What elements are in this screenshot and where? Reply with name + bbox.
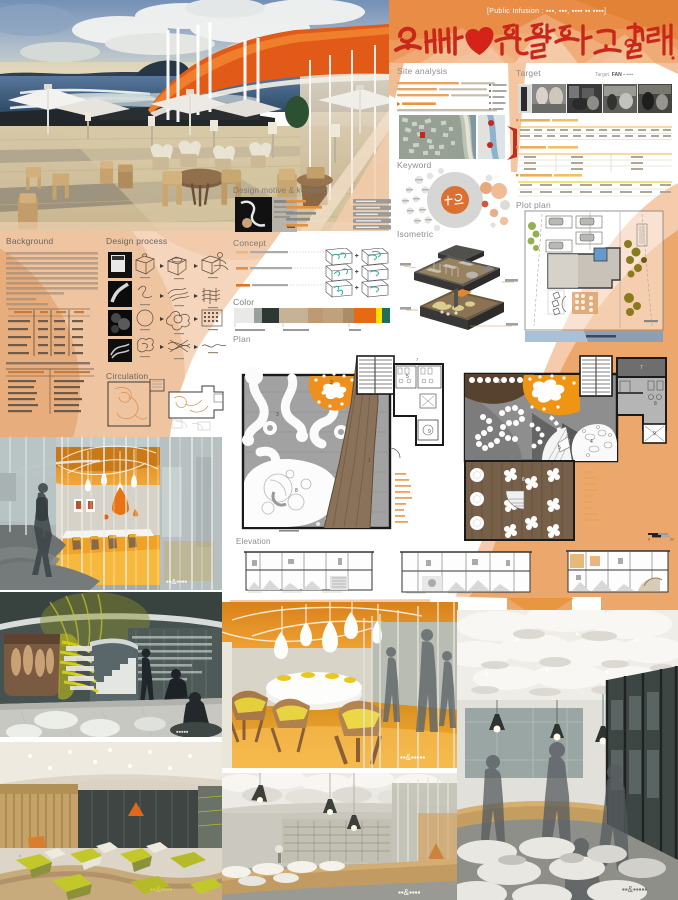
svg-text:2m: 2m [670,537,674,541]
svg-text:5: 5 [406,374,409,380]
svg-text:▪▪▪▪▪: ▪▪▪▪▪ [176,729,189,736]
svg-text:9: 9 [653,431,656,437]
svg-text:3: 3 [550,381,553,387]
svg-text:6: 6 [522,477,525,483]
svg-text:1: 1 [368,458,371,464]
svg-text:▪▪&▪▪▪▪▪: ▪▪&▪▪▪▪▪ [622,885,647,894]
svg-text:4: 4 [590,439,593,445]
svg-text:▪▪&▪▪▪▪▪: ▪▪&▪▪▪▪▪ [400,753,425,762]
svg-text:9: 9 [428,429,431,435]
svg-text:8: 8 [654,401,657,407]
svg-text:7: 7 [640,365,643,371]
svg-text:1: 1 [506,421,509,427]
svg-text:2: 2 [498,379,501,385]
svg-text:8: 8 [295,488,298,494]
svg-text:▪▪&▪▪▪▪: ▪▪&▪▪▪▪ [398,888,421,897]
svg-text:2: 2 [330,380,333,386]
svg-text:0: 0 [648,537,651,541]
svg-text:▪▪&▪▪▪▪: ▪▪&▪▪▪▪ [150,885,173,894]
svg-text:▪▪&▪▪▪▪: ▪▪&▪▪▪▪ [166,577,187,586]
svg-text:7: 7 [416,357,419,362]
svg-text:5: 5 [558,445,561,451]
svg-text:3: 3 [276,412,279,418]
